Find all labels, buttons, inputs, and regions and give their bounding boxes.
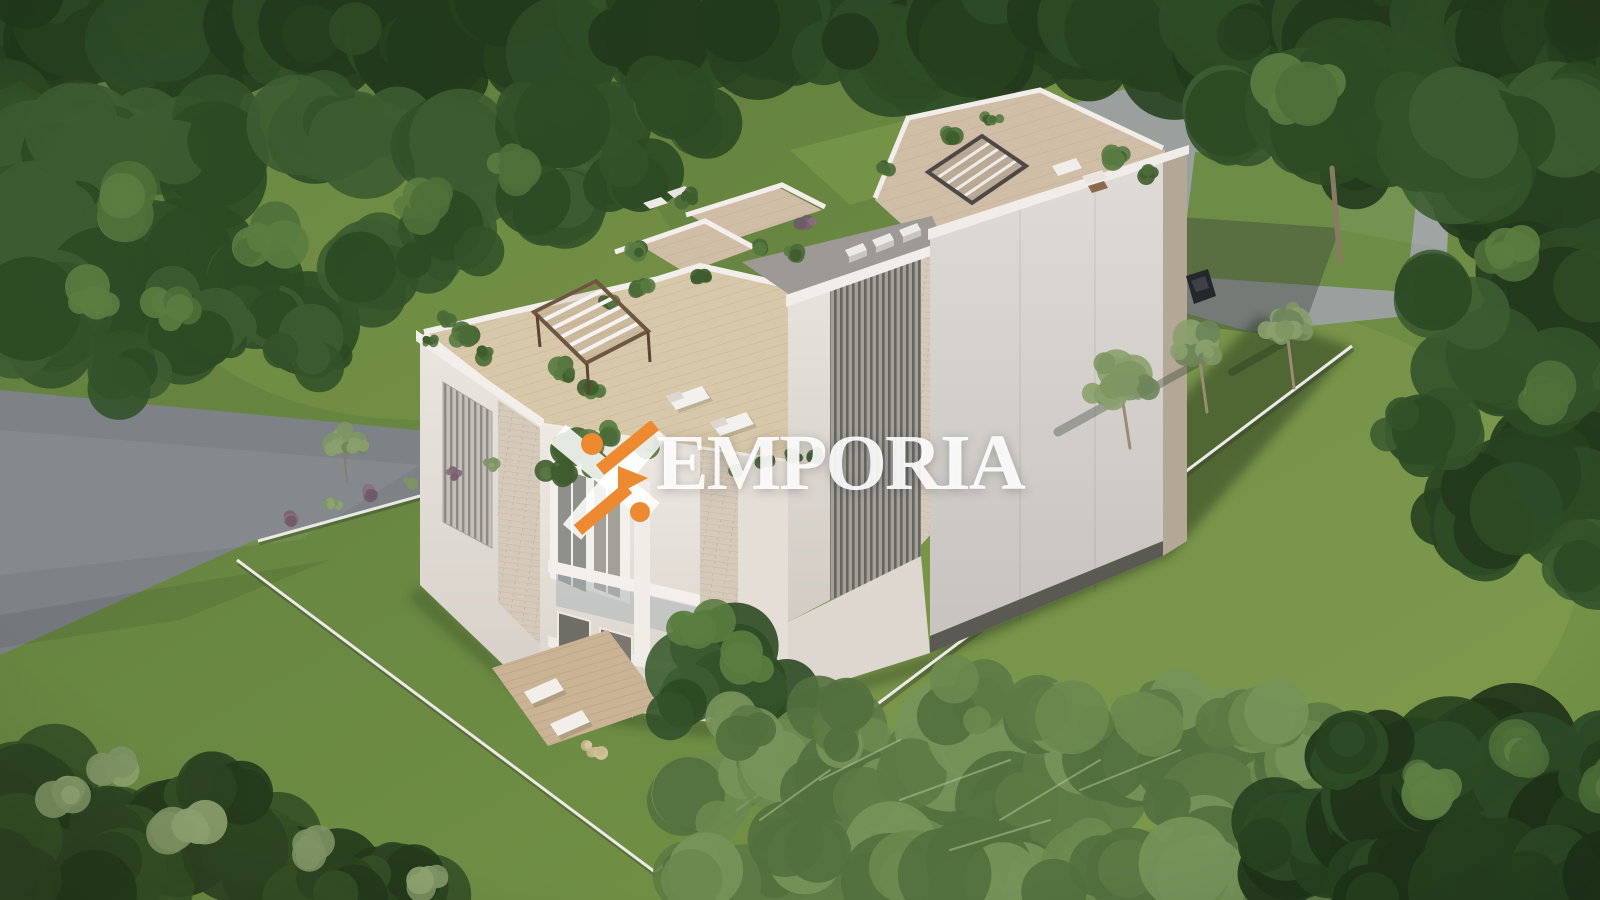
property-aerial-render: EMPORIA xyxy=(0,0,1600,900)
render-scene xyxy=(0,0,1600,900)
vignette xyxy=(0,0,1600,900)
